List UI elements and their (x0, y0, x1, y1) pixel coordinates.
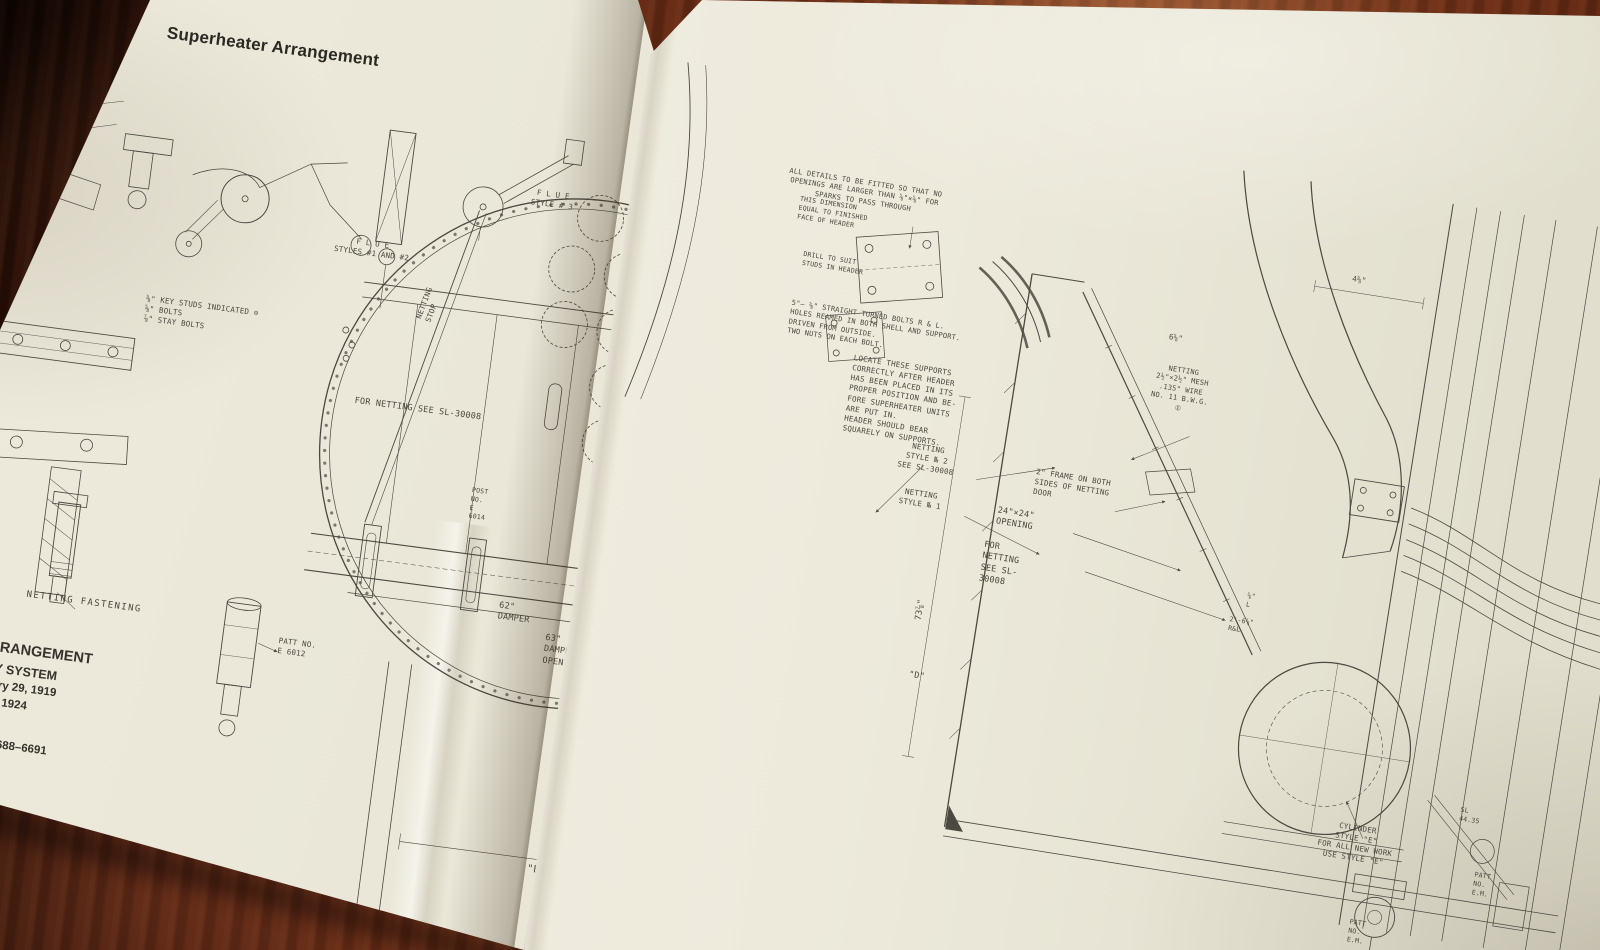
smokebox-side-drawing (549, 61, 1600, 950)
damper-label: 62" DAMPER (497, 600, 532, 627)
for-netting-label-right: FOR NETTING SEE SL-30008 (978, 540, 1022, 591)
dimension-d-label: "D" (908, 670, 926, 684)
detail-drawing-e6012 (210, 596, 284, 741)
dimension-6-label: 6⅝" (1168, 332, 1184, 344)
detail-drawings-left-column (0, 318, 143, 613)
photo-of-blueprint-on-wood-table: Superheater Arrangement ⅝" KEY STUDS IND… (0, 0, 1600, 950)
caption-block: RRANGEMENT AY SYSTEM uary 29, 1919 16, 1… (0, 636, 94, 764)
dimension-4-label: 4⅝" (1351, 274, 1367, 286)
dimension-26-label: 2'-6⅞" R&L (1227, 615, 1254, 636)
detail-drawings-top-left (23, 72, 585, 389)
sl-number-label: SL 44.35 (1458, 806, 1481, 827)
